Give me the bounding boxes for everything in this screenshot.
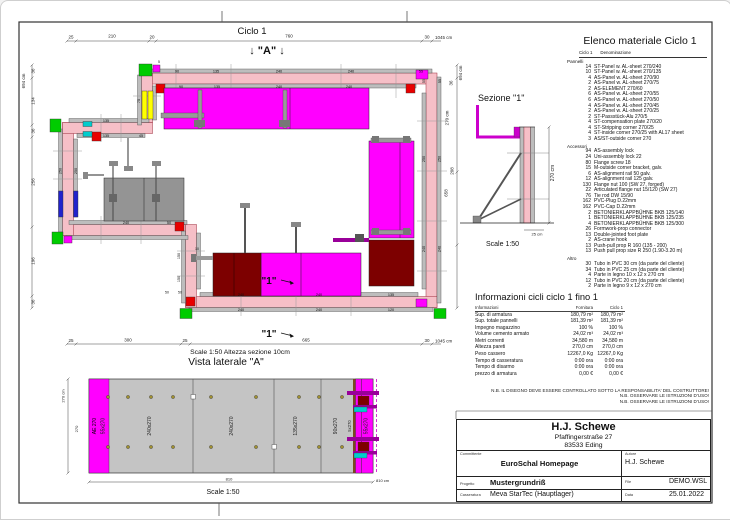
plan-scale-note: Scale 1:50 Altezza sezione 10cm <box>190 349 290 356</box>
info-fornitura-value: 34,580 m <box>533 338 593 345</box>
svg-text:760: 760 <box>285 34 293 39</box>
inside-corner-red <box>175 222 184 231</box>
svg-text:270 cm: 270 cm <box>61 389 66 403</box>
company-name: H.J. Schewe <box>457 420 710 434</box>
info-fornitura-value: 24,02 m³ <box>533 331 593 338</box>
svg-text:45: 45 <box>139 134 143 138</box>
info-label: Sup. di armatura <box>475 312 533 319</box>
material-qty: 2 <box>567 284 594 290</box>
svg-text:55: 55 <box>422 79 426 83</box>
section-scale: Scale 1:50 <box>486 241 519 248</box>
svg-text:240: 240 <box>316 308 322 312</box>
company-address1: Pfaffingerstraße 27 <box>457 434 710 442</box>
inside-corner-red <box>156 84 165 93</box>
lateral-view: Vista laterale "A" <box>61 357 390 496</box>
info-label: Impegno magazzino <box>475 325 533 332</box>
svg-text:240: 240 <box>348 69 354 73</box>
svg-text:135x270: 135x270 <box>293 416 299 435</box>
info-label: Tempo di disarmo <box>475 364 533 371</box>
col-informazioni: Informazioni <box>475 305 533 310</box>
info-label: Metri correnti <box>475 338 533 345</box>
outside-corner-green <box>139 64 152 76</box>
svg-text:150: 150 <box>177 276 181 282</box>
svg-text:250: 250 <box>74 168 78 174</box>
fitting-magenta <box>153 65 160 72</box>
info-label: prezzo di armatura <box>475 371 533 378</box>
info-ciclo-value: 180,79 m² <box>593 312 623 319</box>
svg-text:240: 240 <box>238 308 244 312</box>
svg-text:694 cm: 694 cm <box>458 65 463 80</box>
info-ciclo-value: 12267,0 Kg <box>593 351 623 358</box>
file-value: DEMO.WSL <box>669 478 707 485</box>
compensation-yellow <box>142 91 147 119</box>
svg-text:665: 665 <box>302 338 310 343</box>
panel-blue <box>59 191 64 217</box>
info-fornitura-value: 180,79 m² <box>533 312 593 319</box>
plan-view: Ciclo 1 ↓ "A" ↓ 25 210 20 760 30 1045 cm… <box>21 26 463 356</box>
col-denominazione: Denominazione <box>600 50 631 56</box>
svg-text:240x270: 240x270 <box>229 416 235 435</box>
svg-text:75: 75 <box>137 99 141 103</box>
svg-text:810: 810 <box>226 477 233 482</box>
platform-bottom <box>261 253 361 296</box>
cycle-info-title: Informazioni cicli ciclo 1 fino 1 <box>475 292 625 302</box>
marker-a: ↓ "A" ↓ <box>249 45 285 57</box>
info-row: prezzo di armatura 0,00 € 0,00 € <box>475 371 625 378</box>
platform-darkred-bottom <box>213 253 261 296</box>
autore-cell: Autore H.J. Schewe <box>622 451 710 477</box>
info-ciclo-value: 24,02 m³ <box>593 331 623 338</box>
platform-right <box>369 141 414 238</box>
lateral-scale: Scale 1:50 <box>206 489 239 496</box>
svg-text:55x270: 55x270 <box>101 418 107 435</box>
inside-corner-red <box>186 297 195 306</box>
title-block-header: H.J. Schewe Pfaffingerstraße 27 83533 Ed… <box>457 420 710 451</box>
svg-text:134: 134 <box>31 97 36 105</box>
svg-text:240: 240 <box>422 246 426 252</box>
title-block: H.J. Schewe Pfaffingerstraße 27 83533 Ed… <box>456 419 711 502</box>
svg-text:150: 150 <box>177 253 181 259</box>
svg-text:240x270: 240x270 <box>147 416 153 435</box>
col-fornitura: Fornitura <box>533 305 593 310</box>
casseratura-cell: Casseratura Meva StarTec (Hauptlager) <box>457 490 621 501</box>
panel-blue <box>74 191 79 217</box>
material-name: AS/ST-outside corner 270 <box>594 137 713 143</box>
info-row: Peso cassero 12267,0 Kg 12267,0 Kg <box>475 351 625 358</box>
svg-text:250: 250 <box>422 156 426 162</box>
info-row: Metri correnti 34,580 m 34,580 m <box>475 338 625 345</box>
svg-text:10: 10 <box>195 247 199 251</box>
info-fornitura-value: 181,39 m² <box>533 318 593 325</box>
svg-text:"1": "1" <box>261 276 276 287</box>
svg-text:240: 240 <box>238 293 244 297</box>
info-row: Tempo di casseratura 0:00 ora 0:00 ora <box>475 358 625 365</box>
compensation-yellow <box>148 91 153 119</box>
svg-text:210: 210 <box>108 34 116 39</box>
svg-text:55x270: 55x270 <box>364 418 370 435</box>
info-ciclo-value: 0:00 ora <box>593 358 623 365</box>
info-fornitura-value: 12267,0 Kg <box>533 351 593 358</box>
dim-chain-right-labels: 694 cm 36 270 cm 208 658 <box>444 65 464 196</box>
svg-text:240: 240 <box>276 69 282 73</box>
material-name: Parte in legno 9 x 12 x 270 cm <box>594 284 713 290</box>
svg-text:20: 20 <box>149 35 155 40</box>
outside-corner-green <box>50 119 61 132</box>
dim-chain-top <box>66 40 442 43</box>
section-title: Sezione "1" <box>478 93 524 103</box>
svg-text:90: 90 <box>179 85 183 89</box>
data-label: Data <box>625 493 651 497</box>
section-base-dim: 25 cm <box>532 232 544 237</box>
svg-text:50: 50 <box>165 291 169 295</box>
col-ciclo1: Ciclo 1 <box>593 305 623 310</box>
material-qty: 3 <box>567 137 594 143</box>
svg-text:270: 270 <box>74 425 79 432</box>
col-ciclo: Ciclo 1 <box>579 50 592 56</box>
committente-label: Committente <box>460 452 619 456</box>
svg-text:25: 25 <box>68 338 74 343</box>
svg-text:1045 cm: 1045 cm <box>435 339 453 344</box>
info-row: Impegno magazzino 100 % 100 % <box>475 325 625 332</box>
svg-text:135: 135 <box>213 69 219 73</box>
svg-text:AE 270: AE 270 <box>92 418 98 435</box>
outside-corner-green <box>52 232 63 244</box>
info-row: Sup. di armatura 180,79 m² 180,79 m² <box>475 312 625 319</box>
svg-text:36: 36 <box>31 68 36 74</box>
svg-text:36: 36 <box>449 80 454 86</box>
inside-corner-red <box>406 84 415 93</box>
svg-text:810 cm: 810 cm <box>376 478 390 483</box>
platform-bracket <box>478 105 521 137</box>
info-fornitura-value: 0:00 ora <box>533 364 593 371</box>
info-label: Peso cassero <box>475 351 533 358</box>
svg-text:36: 36 <box>31 299 36 305</box>
svg-text:240: 240 <box>316 293 322 297</box>
progetto-cell: Progetto Mustergrundriß <box>457 477 621 490</box>
svg-text:256: 256 <box>31 178 36 186</box>
svg-text:658: 658 <box>444 189 449 197</box>
info-ciclo-value: 270,0 cm <box>593 344 623 351</box>
svg-text:135: 135 <box>388 293 394 297</box>
svg-text:5x270: 5x270 <box>347 420 352 432</box>
info-fornitura-value: 100 % <box>533 325 593 332</box>
svg-text:25: 25 <box>182 338 188 343</box>
compensation-cyan <box>83 132 92 137</box>
autore-value: H.J. Schewe <box>625 459 708 466</box>
svg-text:36: 36 <box>31 128 36 134</box>
material-qty: 13 <box>567 249 594 255</box>
svg-text:1045 cm: 1045 cm <box>435 35 453 40</box>
inside-corner-red <box>92 132 101 141</box>
material-row: 2 Parte in legno 9 x 12 x 270 cm <box>567 284 713 290</box>
dim-chain-right <box>456 64 459 310</box>
svg-text:90: 90 <box>175 69 179 73</box>
svg-text:270 cm: 270 cm <box>445 110 450 125</box>
company-address2: 83533 Eding <box>457 442 710 450</box>
fitting-magenta <box>416 299 427 307</box>
svg-text:208: 208 <box>450 167 455 175</box>
autore-label: Autore <box>625 452 708 456</box>
info-ciclo-value: 34,580 m <box>593 338 623 345</box>
data-value: 25.01.2022 <box>669 491 704 498</box>
progetto-label: Progetto <box>460 482 486 486</box>
platform-darkred-right <box>369 240 414 286</box>
svg-text:300: 300 <box>124 338 132 343</box>
svg-text:55: 55 <box>438 79 442 83</box>
material-list-title: Elenco materiale Ciclo 1 <box>567 35 713 47</box>
svg-text:30: 30 <box>424 338 430 343</box>
svg-text:5: 5 <box>158 60 160 64</box>
drawing-sheet: Ciclo 1 ↓ "A" ↓ 25 210 20 760 30 1045 cm… <box>0 0 730 520</box>
info-ciclo-value: 100 % <box>593 325 623 332</box>
committente-cell: Committente EuroSchal Homepage <box>457 451 621 477</box>
section-view: Sezione "1" 270 cm 25 cm Scale 1:50 <box>460 93 556 248</box>
file-label: File <box>625 480 651 484</box>
svg-text:196: 196 <box>31 257 36 265</box>
svg-text:50: 50 <box>167 221 171 225</box>
svg-text:55: 55 <box>419 69 423 73</box>
material-row: 13 Push pull prop size R 250 (1.90-3.20 … <box>567 249 713 255</box>
info-row: Tempo di disarmo 0:00 ora 0:00 ora <box>475 364 625 371</box>
outside-corner-green <box>434 309 446 319</box>
material-name: Push pull prop size R 250 (1.90-3.20 m) <box>594 249 713 255</box>
progetto-value: Mustergrundriß <box>490 478 545 487</box>
info-fornitura-value: 0,00 € <box>533 371 593 378</box>
fitting-magenta <box>64 236 72 243</box>
svg-text:240: 240 <box>438 246 442 252</box>
data-cell: Data 25.01.2022 <box>622 490 710 501</box>
lateral-title: Vista laterale "A" <box>188 357 264 368</box>
file-cell: File DEMO.WSL <box>622 477 710 490</box>
committente-value: EuroSchal Homepage <box>460 459 619 468</box>
material-row: 3 AS/ST-outside corner 270 <box>567 137 713 143</box>
svg-text:120: 120 <box>388 308 394 312</box>
dim-chain-left-labels: 694 cm 36 134 36 256 196 36 <box>21 68 36 305</box>
info-fornitura-value: 0:00 ora <box>533 358 593 365</box>
svg-text:250: 250 <box>58 168 62 174</box>
cycle-info: Informazioni cicli ciclo 1 fino 1 Inform… <box>475 292 625 377</box>
svg-text:30: 30 <box>424 35 430 40</box>
info-label: Sup. totale pannelli <box>475 318 533 325</box>
svg-text:"1": "1" <box>261 329 276 340</box>
outside-corner-green <box>180 309 192 319</box>
svg-text:50: 50 <box>178 291 182 295</box>
material-list-header: Ciclo 1 Denominazione <box>579 50 707 58</box>
svg-text:250: 250 <box>438 156 442 162</box>
info-ciclo-value: 0,00 € <box>593 371 623 378</box>
note-line: N.B. OSSERVARE LE ISTRUZIONI D'USO! <box>421 399 709 404</box>
compensation-cyan <box>83 122 92 127</box>
info-label: Altezza pareti <box>475 344 533 351</box>
section-height-dim: 270 cm <box>550 165 556 181</box>
info-row: Altezza pareti 270,0 cm 270,0 cm <box>475 344 625 351</box>
info-row: Sup. totale pannelli 181,39 m² 181,39 m² <box>475 318 625 325</box>
material-list: Elenco materiale Ciclo 1 Ciclo 1 Denomin… <box>567 35 713 297</box>
svg-text:135: 135 <box>214 85 220 89</box>
casseratura-value: Meva StarTec (Hauptlager) <box>490 491 574 498</box>
info-fornitura-value: 270,0 cm <box>533 344 593 351</box>
svg-text:25: 25 <box>68 35 74 40</box>
casseratura-label: Casseratura <box>460 493 486 497</box>
info-label: Tempo di casseratura <box>475 358 533 365</box>
info-label: Volume cemento armato <box>475 331 533 338</box>
svg-text:90x270: 90x270 <box>333 418 339 435</box>
svg-text:694 cm: 694 cm <box>21 73 26 88</box>
info-ciclo-value: 0:00 ora <box>593 364 623 371</box>
notes: N.B. IL DISEGNO DEVE ESSERE CONTROLLATO … <box>421 388 709 404</box>
svg-text:240: 240 <box>123 221 129 225</box>
svg-text:135: 135 <box>103 134 109 138</box>
dim-chain-bottom <box>66 343 442 346</box>
svg-text:135: 135 <box>103 119 109 123</box>
info-ciclo-value: 181,39 m² <box>593 318 623 325</box>
info-row: Volume cemento armato 24,02 m³ 24,02 m³ <box>475 331 625 338</box>
plan-title: Ciclo 1 <box>237 26 266 37</box>
svg-text:240: 240 <box>276 85 282 89</box>
svg-text:240: 240 <box>346 85 352 89</box>
